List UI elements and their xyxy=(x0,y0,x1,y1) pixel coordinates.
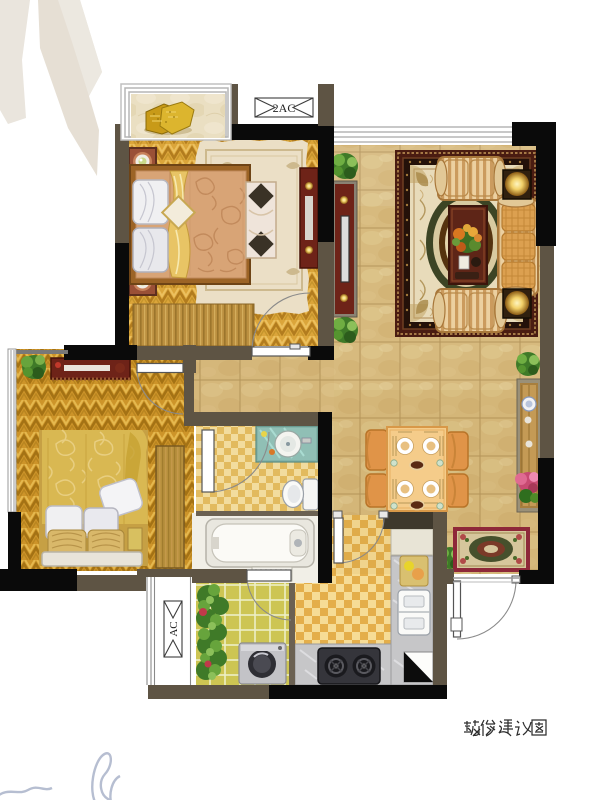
svg-text:AC: AC xyxy=(168,621,180,636)
svg-text:2AC: 2AC xyxy=(273,101,296,115)
